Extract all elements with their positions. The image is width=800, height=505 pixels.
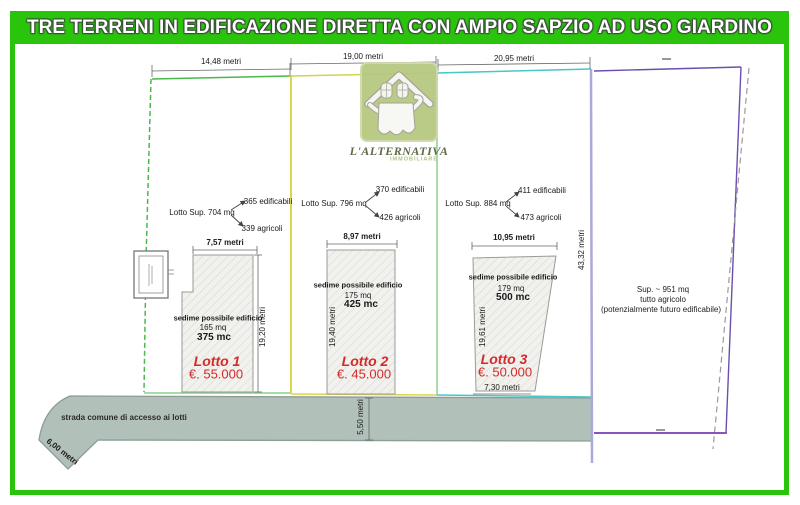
lot1-top-boundary — [152, 76, 291, 79]
agency-logo — [361, 63, 437, 141]
lot3-volume-label: 500 mc — [496, 293, 530, 303]
lot3-price: €. 50.000 — [478, 366, 532, 379]
lot2-depth-measure: 19,40 metri — [329, 307, 337, 347]
access-road — [39, 396, 592, 469]
lot3-surface-label: Lotto Sup. 884 mq — [445, 200, 510, 208]
logo-subtitle: IMMOBILIARE — [390, 157, 438, 163]
utility-cabin — [134, 251, 174, 298]
cabin-side-mark — [168, 270, 174, 274]
lot3-front-measure: 20,95 metri — [494, 55, 534, 63]
lot2-front-measure: 19,00 metri — [343, 53, 383, 61]
road-label: strada comune di accesso ai lotti — [61, 414, 187, 422]
lot3-depth-measure: 19,61 metri — [479, 307, 487, 347]
agri-lot-dashed-boundary — [713, 68, 749, 449]
lot1-depth-measure: 19,20 metri — [259, 307, 267, 347]
agri-side-measure: 43,32 metri — [578, 230, 586, 270]
agri-surface-label: Sup. ~ 951 mq — [637, 286, 689, 294]
lot3-rear-measure: 7,30 metri — [484, 384, 520, 392]
lot2-surface-label: Lotto Sup. 796 mq — [301, 200, 366, 208]
road-width-measure: 5,50 metri — [357, 399, 365, 435]
agri-top-tick-mark — [662, 58, 671, 60]
lot3-sedime-label: sedime possibile edificio — [469, 273, 558, 281]
lot1-edificabili-label: 365 edificabili — [244, 198, 292, 206]
lot1-surface-label: Lotto Sup. 704 mq — [169, 209, 234, 217]
agri-bottom-tick-mark — [656, 429, 665, 431]
agri-lot-right-boundary — [726, 67, 741, 433]
lot1-agricoli-label: 339 agricoli — [242, 225, 283, 233]
agri-use-label: tutto agricolo — [640, 296, 686, 304]
logo-name: L'ALTERNATIVA — [350, 145, 449, 157]
agri-note-label: (potenzialmente futuro edificabile) — [601, 306, 721, 314]
lot3-bottom-boundary — [437, 395, 591, 397]
lot2-price: €. 45.000 — [337, 368, 391, 381]
land-plot-plan: TRE TERRENI IN EDIFICAZIONE DIRETTA CON … — [0, 0, 800, 505]
lot3-edificabili-label: 411 edificabili — [518, 187, 566, 195]
lot1-area-label: 165 mq — [200, 324, 227, 332]
lot1-width-measure: 7,57 metri — [206, 239, 243, 247]
lot2-sedime-label: sedime possibile edificio — [314, 281, 403, 289]
lot1-front-measure: 14,48 metri — [201, 58, 241, 66]
lot3-agricoli-label: 473 agricoli — [521, 214, 562, 222]
lot3-right-boundary — [591, 69, 592, 463]
lot2-volume-label: 425 mc — [344, 300, 378, 310]
plot-map-drawing — [0, 0, 800, 505]
lot2-agricoli-label: 426 agricoli — [380, 214, 421, 222]
page-title: TRE TERRENI IN EDIFICAZIONE DIRETTA CON … — [10, 11, 789, 44]
logo-sheet — [378, 103, 415, 135]
lot1-left-boundary — [144, 79, 151, 392]
agri-lot-top-boundary — [594, 67, 741, 71]
lot1-sedime-label: sedime possibile edificio — [174, 314, 263, 322]
lot1-volume-label: 375 mc — [197, 333, 231, 343]
lot3-top-boundary — [437, 69, 591, 73]
lot3-width-measure: 10,95 metri — [493, 234, 535, 242]
lot1-price: €. 55.000 — [189, 368, 243, 381]
lot2-width-measure: 8,97 metri — [343, 233, 380, 241]
lot2-edificabili-label: 370 edificabili — [376, 186, 424, 194]
